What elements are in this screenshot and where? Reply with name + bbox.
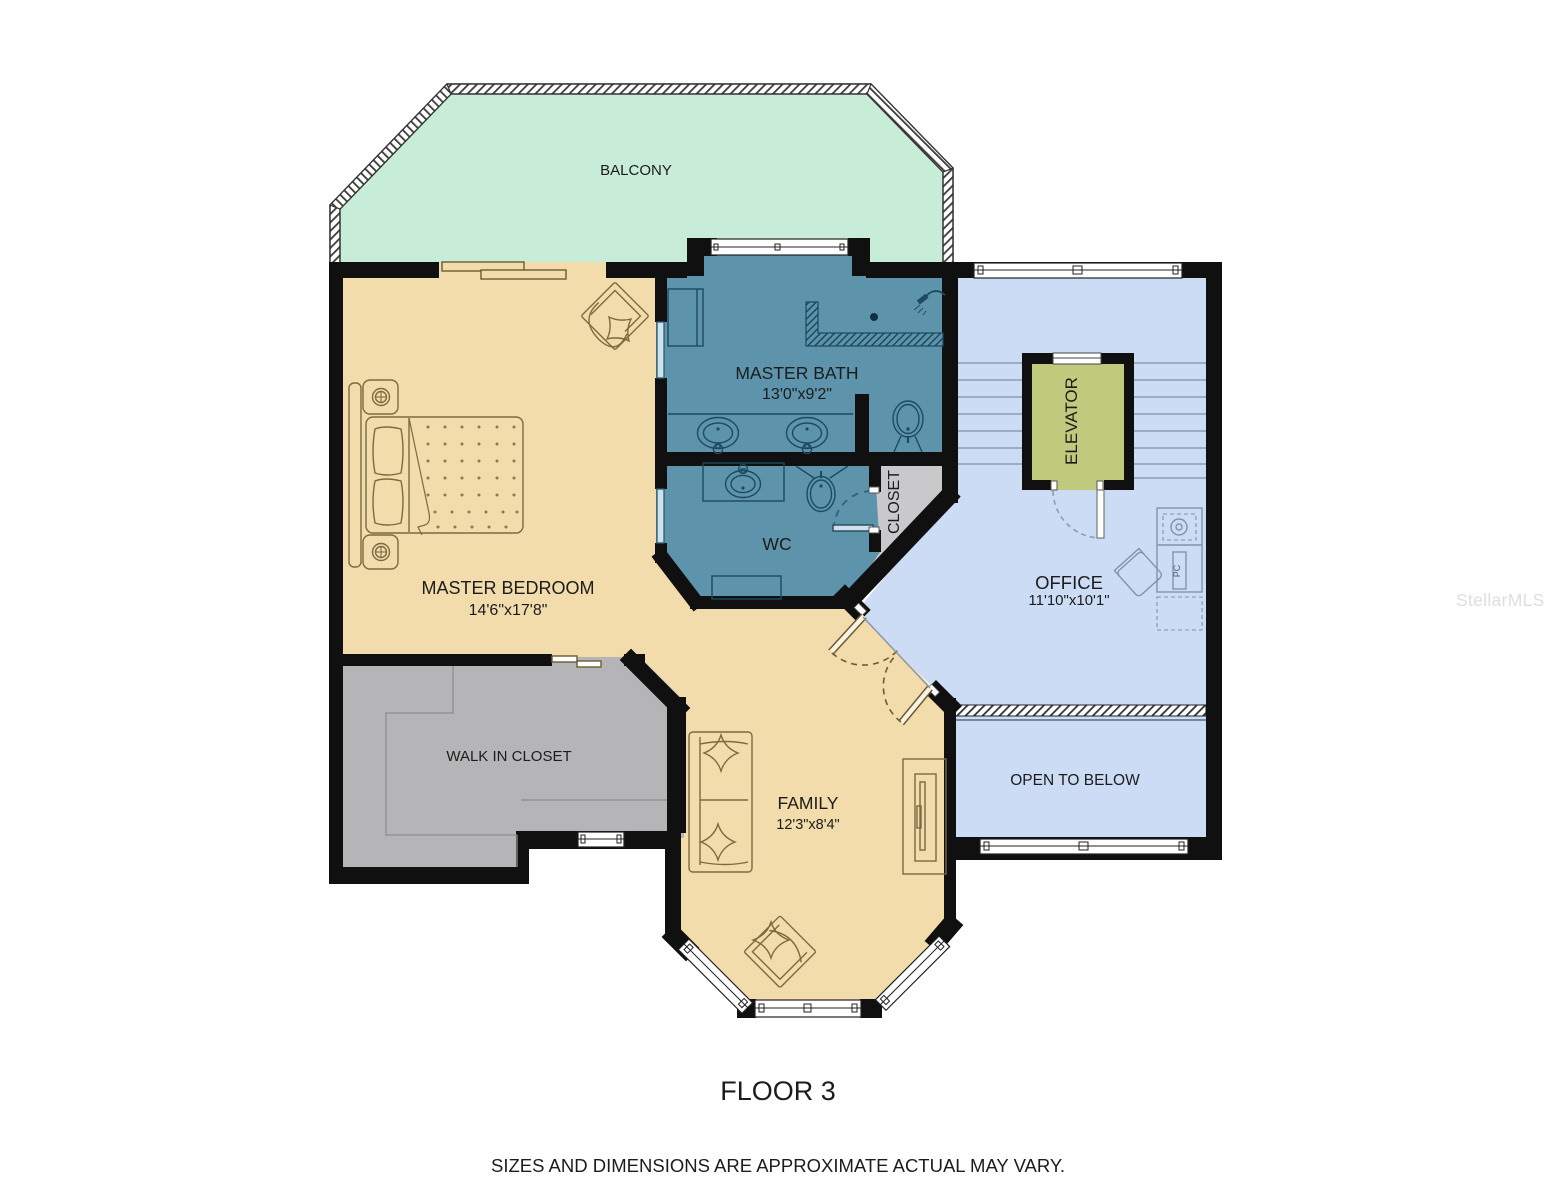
svg-text:StellarMLS: StellarMLS <box>1456 590 1545 610</box>
svg-text:ELEVATOR: ELEVATOR <box>1062 377 1081 465</box>
svg-text:PC: PC <box>1172 564 1182 577</box>
svg-text:14'6"x17'8": 14'6"x17'8" <box>469 602 548 619</box>
svg-text:13'0"x9'2": 13'0"x9'2" <box>762 386 832 403</box>
svg-text:WC: WC <box>762 534 791 554</box>
svg-text:12'3"x8'4": 12'3"x8'4" <box>776 817 839 833</box>
svg-text:11'10"x10'1": 11'10"x10'1" <box>1028 592 1109 609</box>
svg-text:OPEN TO BELOW: OPEN TO BELOW <box>1010 772 1140 789</box>
svg-text:WALK IN CLOSET: WALK IN CLOSET <box>446 748 571 765</box>
svg-text:FAMILY: FAMILY <box>778 793 839 813</box>
svg-text:MASTER BATH: MASTER BATH <box>735 363 858 383</box>
svg-text:BALCONY: BALCONY <box>600 162 672 179</box>
svg-text:MASTER BEDROOM: MASTER BEDROOM <box>421 578 594 598</box>
svg-text:CLOSET: CLOSET <box>886 470 903 534</box>
svg-text:OFFICE: OFFICE <box>1035 572 1103 593</box>
svg-text:FLOOR 3: FLOOR 3 <box>720 1076 836 1106</box>
svg-text:SIZES AND DIMENSIONS ARE APPRO: SIZES AND DIMENSIONS ARE APPROXIMATE ACT… <box>491 1155 1065 1176</box>
